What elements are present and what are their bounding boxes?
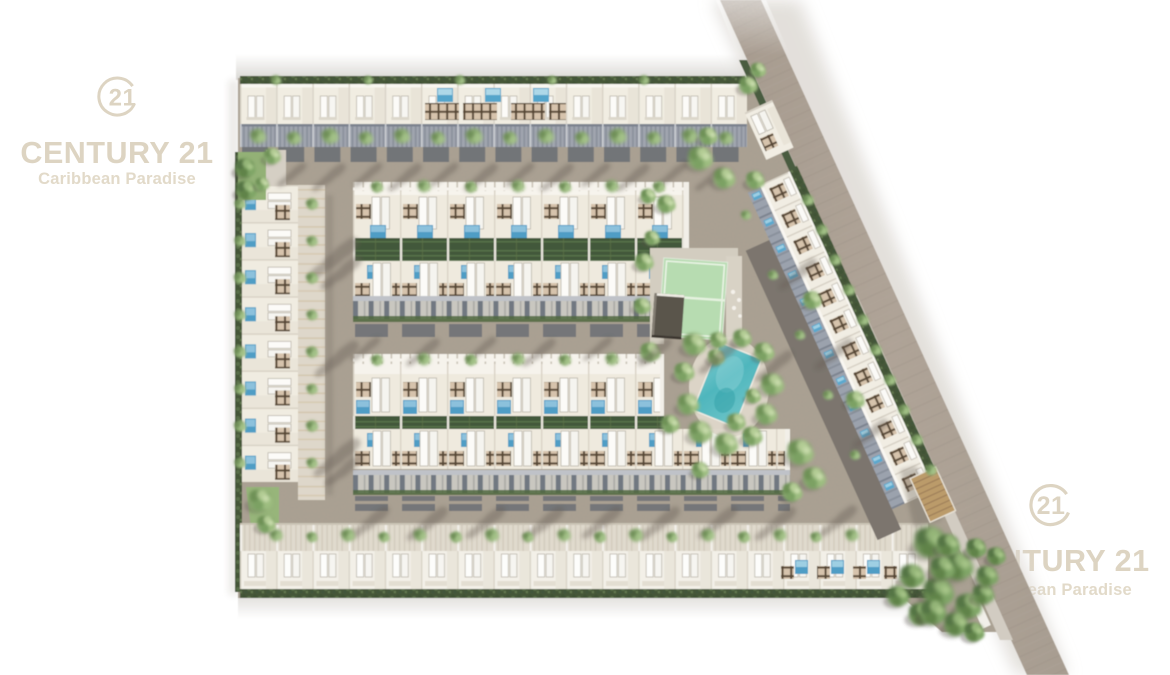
svg-text:21: 21: [109, 85, 137, 112]
svg-text:21: 21: [1037, 492, 1066, 520]
svg-text:CENTURY 21: CENTURY 21: [20, 136, 213, 170]
svg-text:Caribbean Paradise: Caribbean Paradise: [38, 170, 196, 188]
